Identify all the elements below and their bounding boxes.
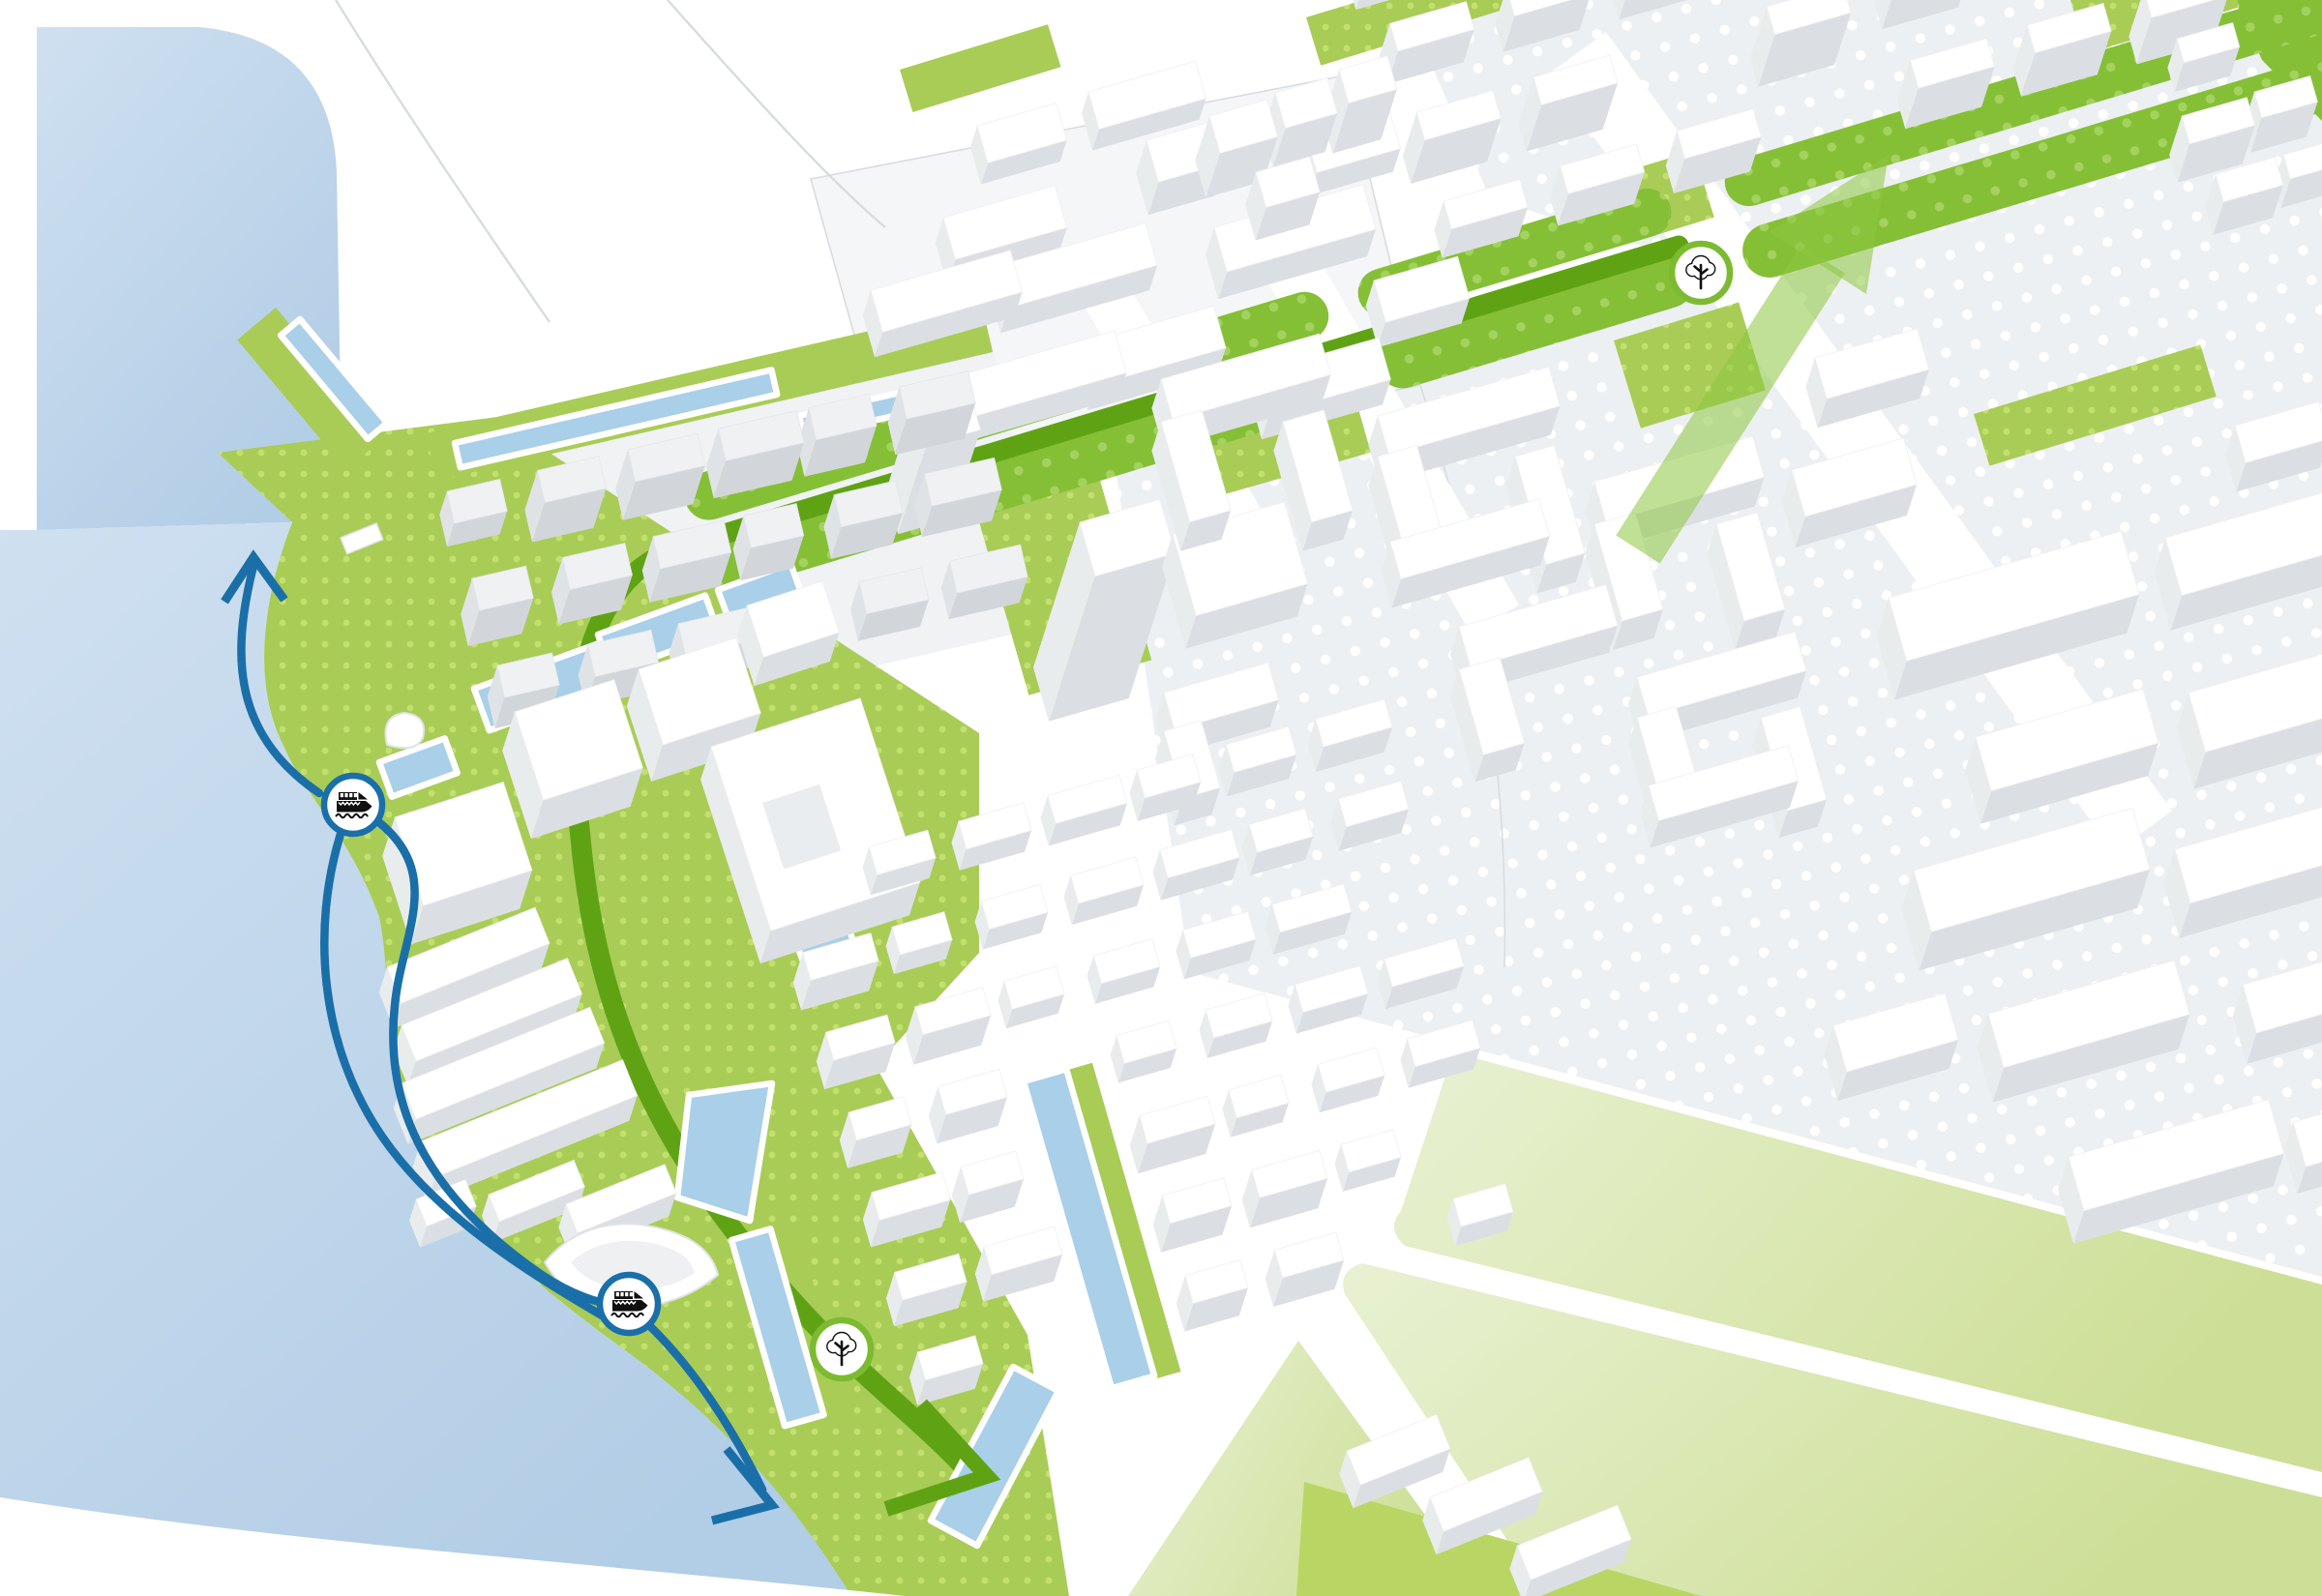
city-map-canvas — [0, 0, 2322, 1596]
masterplan-svg — [0, 0, 2322, 1596]
marker-tree-route-park[interactable] — [813, 1320, 871, 1378]
marker-ferry-stop-south[interactable] — [600, 1275, 658, 1333]
marker-ferry-stop-north[interactable] — [324, 776, 382, 834]
marker-tree-route-boulevard[interactable] — [1672, 244, 1730, 302]
pavilion — [385, 713, 424, 748]
